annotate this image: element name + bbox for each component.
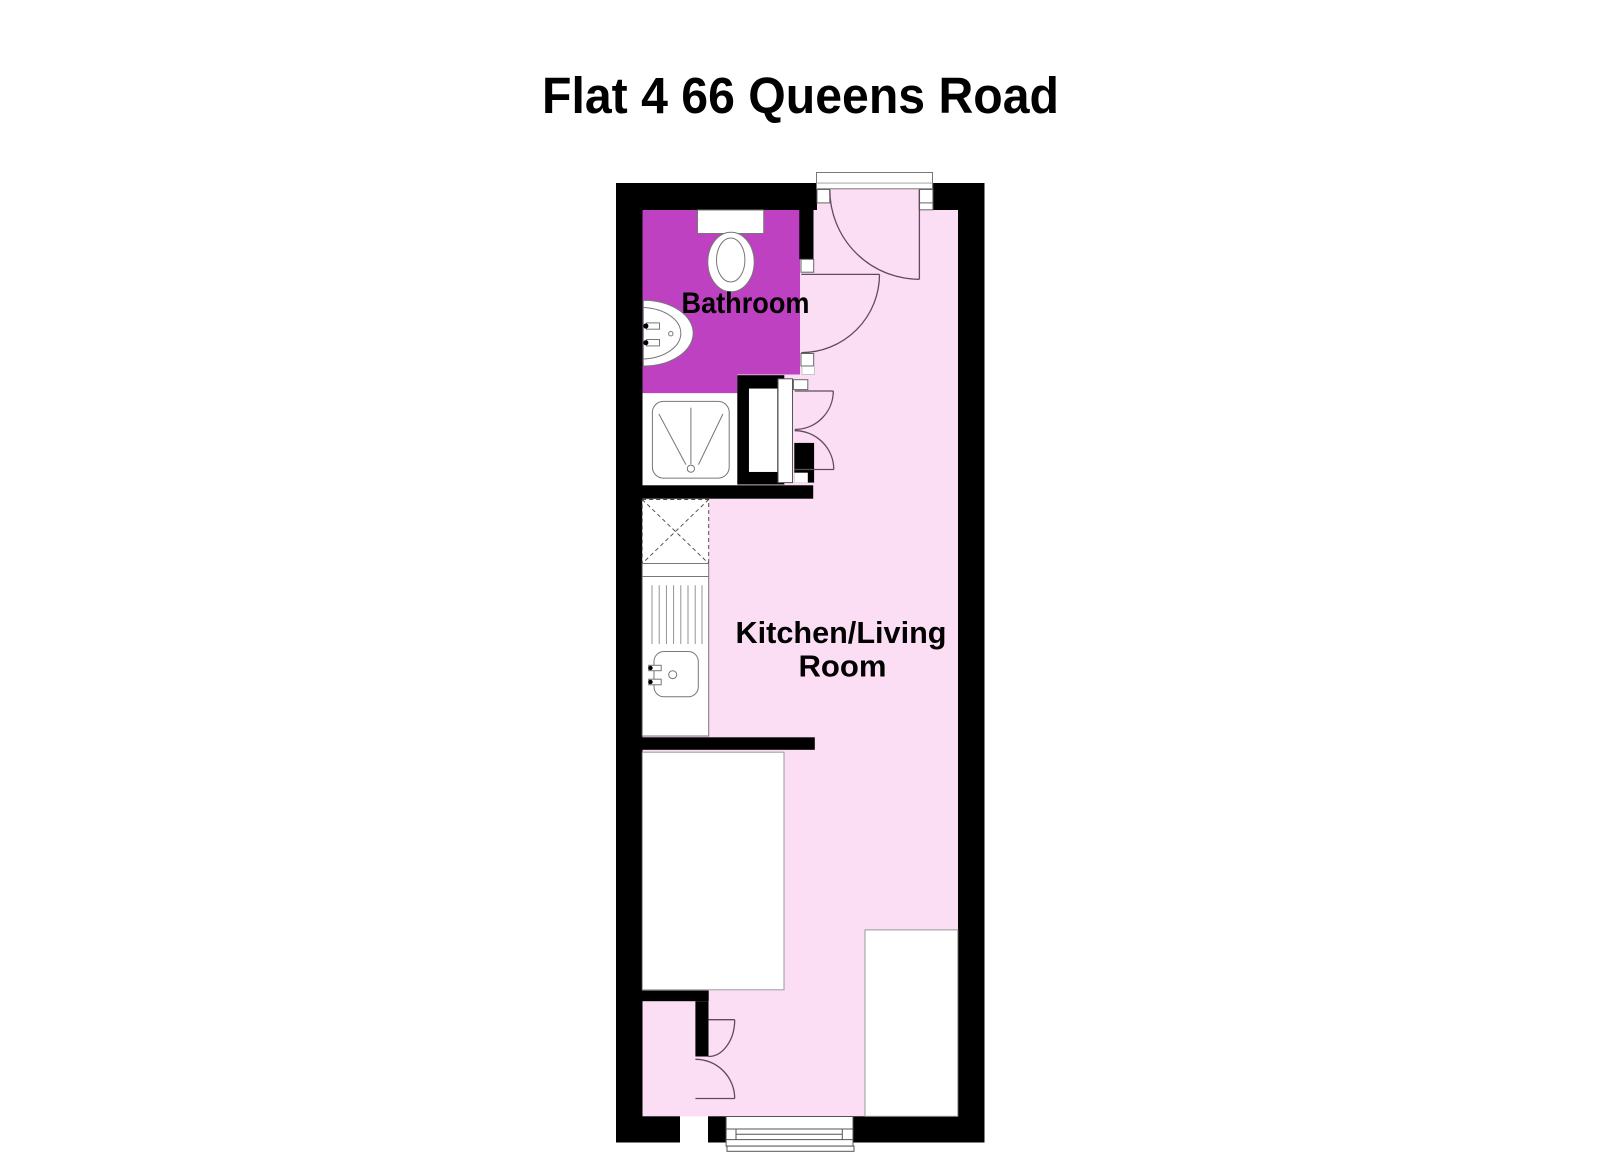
- svg-text:Flat 4 66 Queens Road: Flat 4 66 Queens Road: [542, 67, 1059, 124]
- svg-text:Kitchen/Living: Kitchen/Living: [736, 616, 947, 650]
- svg-text:Bathroom: Bathroom: [682, 287, 810, 320]
- svg-text:Room: Room: [799, 649, 887, 683]
